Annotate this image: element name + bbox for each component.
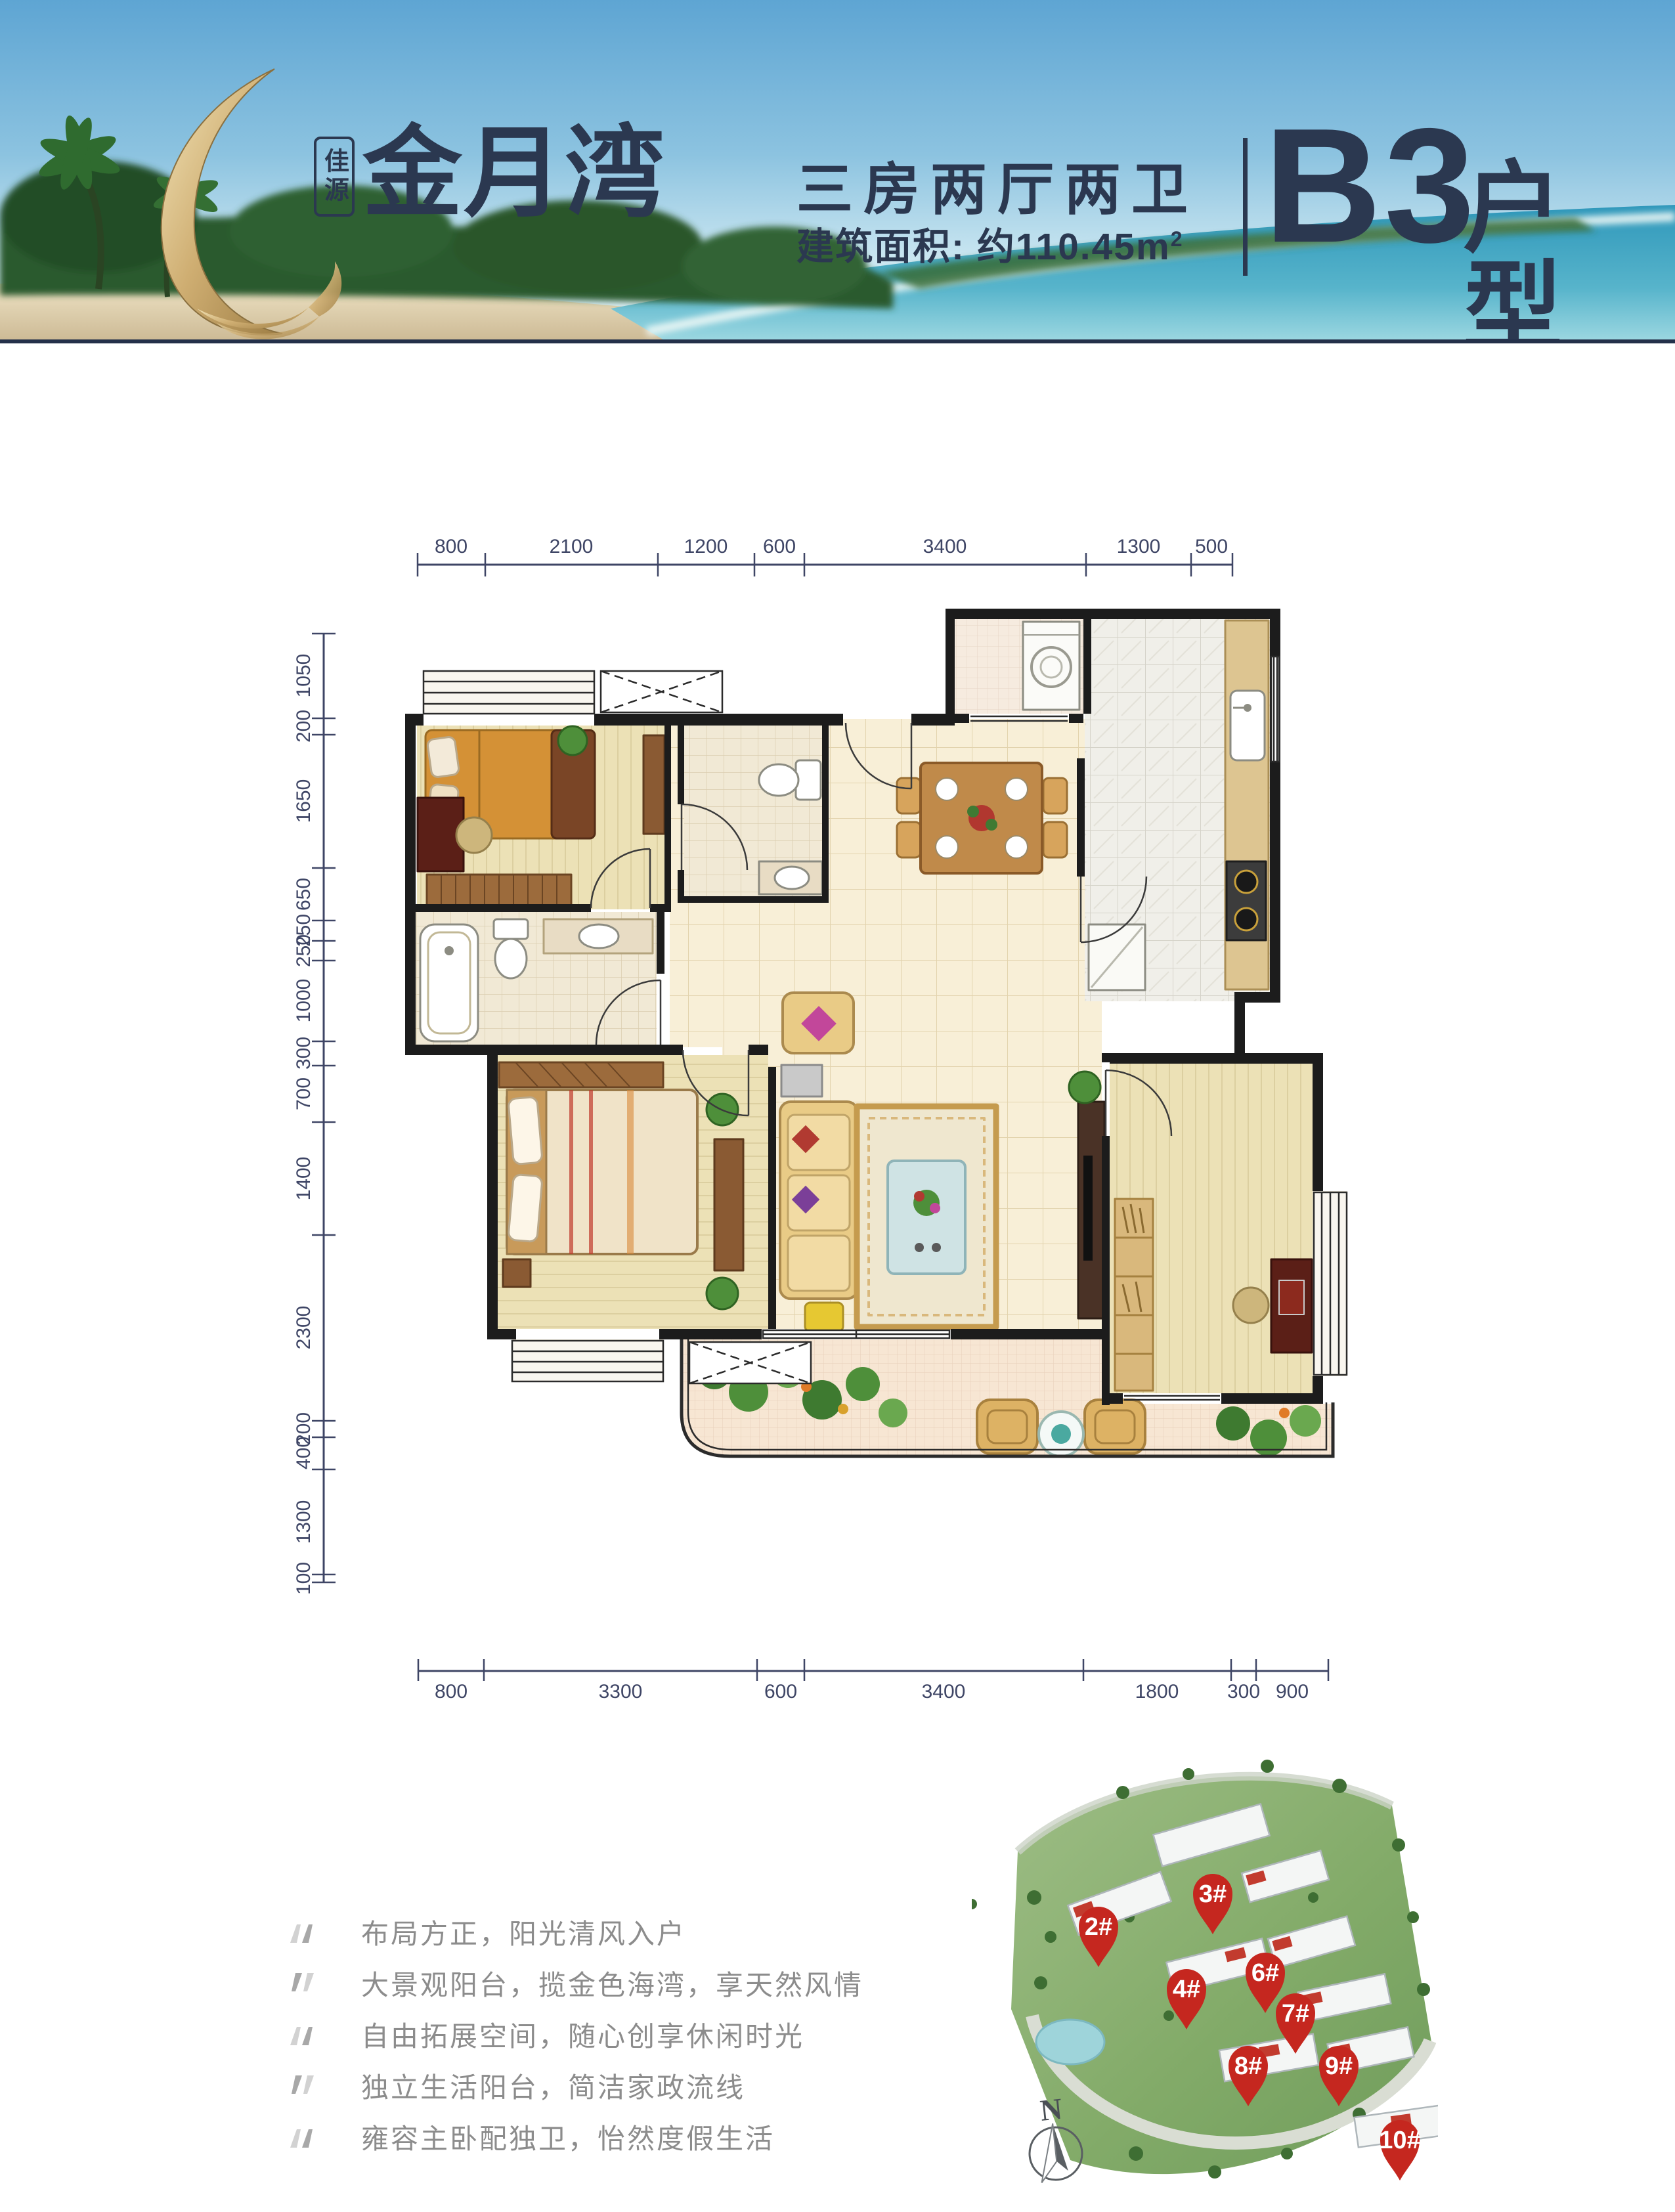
pin-10: 10#: [1379, 2120, 1420, 2180]
feature-item-3: 自由拓展空间，随心创享休闲时光: [288, 2014, 804, 2054]
dim-left-10: 1400: [293, 1157, 315, 1201]
pin-label: 4#: [1173, 1976, 1200, 2003]
dim-left-15: 100: [293, 1562, 315, 1595]
dim-top-6: 1300: [1117, 536, 1161, 558]
siteplan-aerial-view: 2# 3# 4# 6# 7# 8# 9# 10# N: [972, 1733, 1438, 2209]
dim-bottom-2: 3300: [599, 1681, 643, 1703]
pin-label: 2#: [1085, 1913, 1112, 1941]
dim-left-13: 400: [293, 1437, 315, 1469]
dim-bottom-5: 1800: [1135, 1681, 1179, 1703]
dining-set: [897, 763, 1067, 873]
dim-left-2: 200: [293, 710, 315, 743]
dim-top-1: 800: [435, 536, 468, 558]
dim-top-2: 2100: [550, 536, 594, 558]
compass-north-label: N: [1039, 2092, 1064, 2127]
area-superscript: 2: [1171, 227, 1184, 251]
double-chevron-up-icon: [288, 2124, 316, 2150]
feature-text: 自由拓展空间，随心创享休闲时光: [361, 2014, 804, 2054]
washing-machine: [1023, 622, 1079, 710]
dim-bottom-1: 800: [435, 1681, 468, 1703]
pin-label: 7#: [1282, 2000, 1309, 2028]
dim-left-11: 2300: [293, 1306, 315, 1350]
pin-label: 9#: [1325, 2052, 1353, 2080]
unit-code: B3: [1264, 104, 1477, 267]
brand-badge: 佳源: [314, 137, 355, 217]
dim-left-3: 1650: [293, 779, 315, 823]
floorplan: 800 2100 1200 600 3400 1300 500 800 3300…: [263, 499, 1353, 1681]
double-chevron-down-icon: [288, 2073, 316, 2099]
banner-divider: [0, 339, 1675, 343]
dim-top-4: 600: [763, 536, 796, 558]
area-value: 建筑面积: 约110.45m: [796, 226, 1171, 268]
pin-label: 6#: [1251, 1959, 1279, 1987]
dim-bottom-6: 300: [1227, 1681, 1260, 1703]
feature-item-5: 雍容主卧配独卫，怡然度假生活: [288, 2117, 775, 2157]
layout-title: 三房两厅两卫: [796, 143, 1198, 225]
dim-bottom-4: 3400: [922, 1681, 966, 1703]
header-banner: 佳源 金月湾 三房两厅两卫 建筑面积: 约110.45m2 B3 户型: [0, 0, 1675, 343]
title-divider: [1243, 138, 1248, 276]
dim-left-14: 1300: [293, 1500, 315, 1544]
siteplan-pond: [1036, 2020, 1104, 2064]
dim-left-7: 1000: [293, 979, 315, 1023]
pin-label: 10#: [1379, 2127, 1420, 2154]
double-chevron-up-icon: [288, 2022, 316, 2048]
unit-type-label: 户型: [1463, 159, 1675, 343]
double-chevron-down-icon: [288, 1970, 316, 1997]
feature-text: 独立生活阳台，简洁家政流线: [361, 2066, 745, 2106]
dim-bottom-7: 900: [1276, 1681, 1309, 1703]
feature-text: 雍容主卧配独卫，怡然度假生活: [361, 2117, 775, 2157]
dim-left-8: 300: [293, 1037, 315, 1070]
double-chevron-up-icon: [288, 1919, 316, 1945]
feature-text: 大景观阳台，揽金色海湾，享天然风情: [361, 1963, 863, 2003]
brand-badge-text: 佳源: [316, 148, 353, 206]
building-area-text: 建筑面积: 约110.45m2: [796, 217, 1184, 271]
feature-item-1: 布局方正，阳光清风入户: [288, 1912, 686, 1952]
dim-left-6: 250: [293, 934, 315, 967]
dim-top-5: 3400: [923, 536, 967, 558]
dim-top-3: 1200: [684, 536, 728, 558]
dim-left-9: 700: [293, 1077, 315, 1110]
feature-item-4: 独立生活阳台，简洁家政流线: [288, 2066, 745, 2106]
dim-left-4: 650: [293, 878, 315, 911]
dim-bottom-3: 600: [764, 1681, 797, 1703]
feature-item-2: 大景观阳台，揽金色海湾，享天然风情: [288, 1963, 863, 2003]
floorplan-drawing: [263, 499, 1353, 1681]
feature-text: 布局方正，阳光清风入户: [361, 1912, 686, 1952]
siteplan: 2# 3# 4# 6# 7# 8# 9# 10# N: [972, 1733, 1438, 2209]
pin-label: 3#: [1199, 1880, 1227, 1908]
dim-top-7: 500: [1195, 536, 1228, 558]
dim-left-1: 1050: [293, 654, 315, 698]
project-logo-text: 金月湾: [362, 123, 678, 223]
pin-label: 8#: [1234, 2052, 1262, 2080]
